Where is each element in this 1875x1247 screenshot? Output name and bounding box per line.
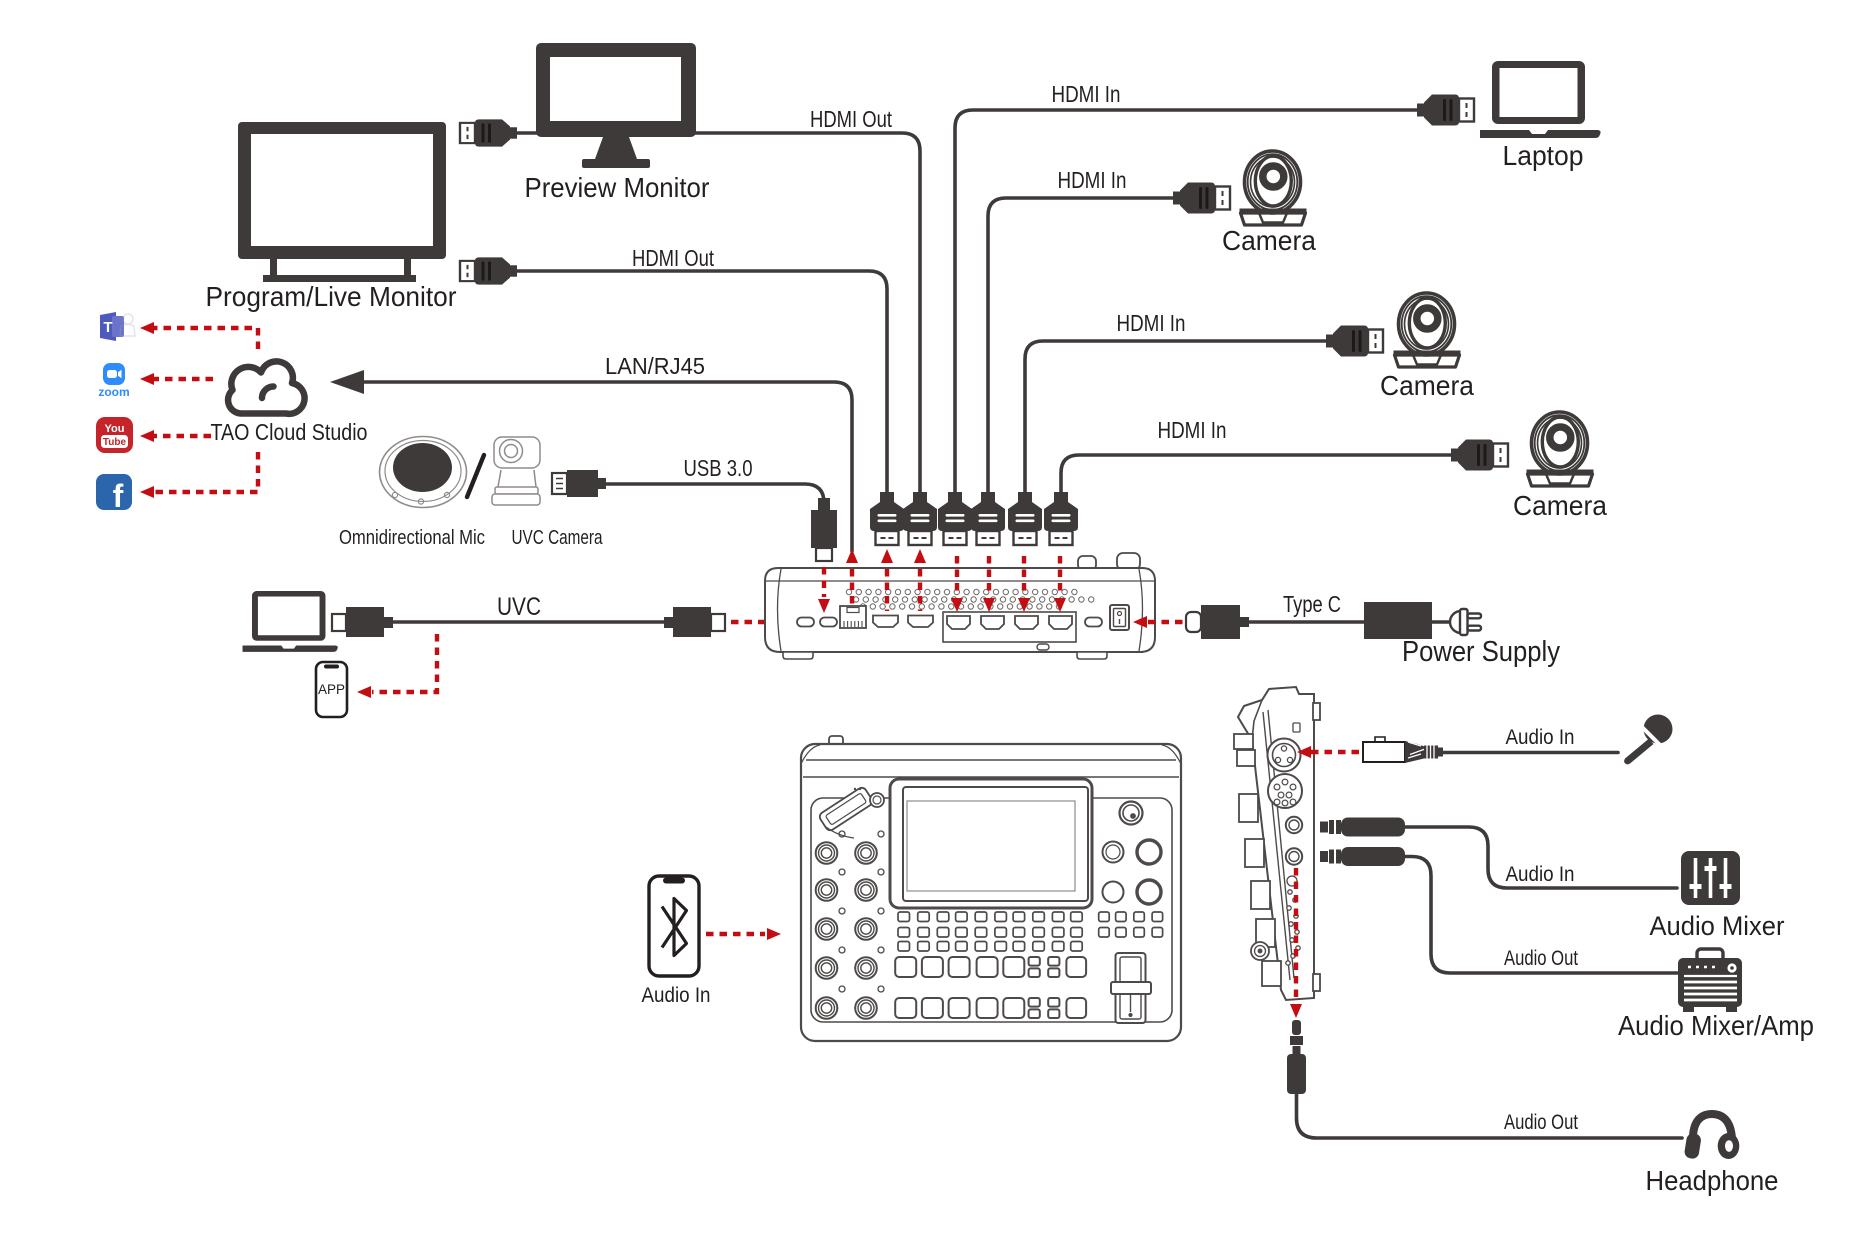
svg-text:Camera: Camera: [1222, 225, 1316, 256]
svg-text:Omnidirectional Mic: Omnidirectional Mic: [339, 527, 485, 549]
svg-text:UVC: UVC: [497, 593, 541, 621]
svg-text:Type C: Type C: [1283, 591, 1341, 617]
svg-text:Power Supply: Power Supply: [1402, 636, 1560, 668]
svg-text:Preview Monitor: Preview Monitor: [525, 172, 710, 203]
svg-text:Camera: Camera: [1380, 370, 1474, 401]
svg-text:T: T: [103, 319, 112, 336]
svg-text:Audio In: Audio In: [642, 984, 711, 1007]
svg-text:HDMI Out: HDMI Out: [632, 245, 714, 271]
svg-text:TAO Cloud Studio: TAO Cloud Studio: [211, 419, 368, 445]
svg-text:LAN/RJ45: LAN/RJ45: [605, 353, 705, 379]
svg-text:Audio In: Audio In: [1506, 863, 1575, 886]
svg-text:Audio Out: Audio Out: [1504, 1111, 1578, 1134]
svg-text:Camera: Camera: [1513, 490, 1607, 521]
svg-text:Audio Out: Audio Out: [1504, 947, 1578, 970]
svg-text:Audio Mixer: Audio Mixer: [1650, 911, 1785, 941]
svg-text:USB 3.0: USB 3.0: [684, 455, 753, 481]
svg-text:Audio In: Audio In: [1506, 726, 1575, 749]
svg-text:Headphone: Headphone: [1646, 1165, 1779, 1196]
svg-text:HDMI In: HDMI In: [1158, 417, 1227, 443]
svg-text:zoom: zoom: [98, 385, 129, 399]
svg-text:HDMI Out: HDMI Out: [810, 106, 892, 132]
svg-text:HDMI In: HDMI In: [1117, 310, 1186, 336]
svg-text:Tube: Tube: [103, 437, 127, 448]
svg-text:APP: APP: [318, 682, 345, 697]
svg-text:HDMI In: HDMI In: [1058, 167, 1127, 193]
svg-text:Laptop: Laptop: [1503, 140, 1584, 171]
svg-text:HDMI In: HDMI In: [1052, 81, 1121, 107]
svg-text:f: f: [113, 478, 124, 514]
svg-text:Audio Mixer/Amp: Audio Mixer/Amp: [1618, 1010, 1814, 1041]
svg-text:UVC Camera: UVC Camera: [512, 527, 604, 549]
svg-text:You: You: [105, 423, 125, 435]
svg-text:Program/Live Monitor: Program/Live Monitor: [206, 281, 457, 312]
